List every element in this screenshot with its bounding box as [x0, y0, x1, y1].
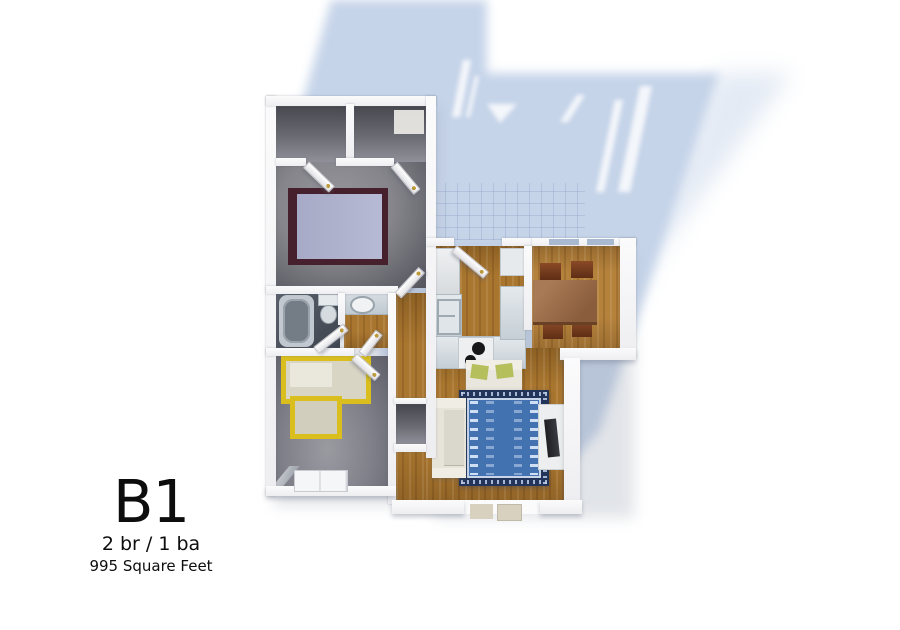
wall-closet-front	[276, 158, 306, 166]
bed-second-blanket	[290, 363, 332, 387]
wall-living-bottom	[540, 500, 582, 514]
hallway-floor	[396, 293, 426, 500]
hall-closet-floor	[394, 404, 426, 444]
wall-outer-left	[266, 96, 276, 496]
wall-hall-closet	[394, 398, 426, 404]
sink-divider	[439, 315, 455, 317]
dining-window	[587, 239, 614, 245]
wall-bath-bottom	[266, 348, 354, 356]
wall-bedroom-right	[426, 96, 436, 458]
wall-kitchen-top	[502, 238, 532, 246]
vanity-sink	[350, 296, 375, 314]
rug-motifs	[470, 401, 478, 475]
rug-motifs	[486, 401, 494, 475]
wall-living-bottom	[392, 500, 464, 514]
plan-label: B1 2 br / 1 ba 995 Square Feet	[78, 472, 224, 575]
tv-stand	[538, 404, 566, 470]
loveseat-pillow	[470, 364, 489, 380]
bathtub-basin	[283, 299, 310, 343]
kitchen-cabinet	[500, 248, 526, 276]
wall-bedroom1-bottom	[266, 286, 398, 294]
wall-living-right	[564, 358, 580, 504]
sofa	[432, 398, 466, 478]
sofa-cushions	[444, 410, 464, 466]
rug-pattern	[461, 480, 547, 484]
closet-left-floor	[276, 104, 346, 162]
tv-screen	[544, 418, 560, 457]
dining-chair	[571, 261, 593, 278]
area-rug	[459, 390, 549, 486]
wall-kitchen-top	[426, 238, 454, 246]
rug-pattern	[461, 392, 547, 396]
wall-hall-closet	[394, 444, 426, 452]
stove-burner-1	[472, 342, 485, 355]
dining-chair	[540, 263, 561, 280]
door-mat	[470, 504, 493, 519]
wall-dining-right	[620, 238, 636, 358]
rug-motifs	[514, 401, 522, 475]
bathtub	[279, 295, 314, 347]
toilet-bowl	[320, 305, 337, 324]
wall-closet-front	[336, 158, 394, 166]
door-mat	[497, 504, 522, 521]
sofa-armrest	[432, 468, 466, 478]
wall-kitchen-dining-divider	[524, 246, 532, 330]
dining-window	[549, 239, 579, 245]
bed-master	[288, 188, 388, 265]
plan-title: B1	[78, 472, 224, 532]
sofa-armrest	[432, 398, 466, 408]
kitchen-sink	[437, 299, 461, 335]
kitchen-counter-right	[500, 286, 526, 340]
floorplan-rendering: B1 2 br / 1 ba 995 Square Feet	[0, 0, 900, 630]
rug-motifs	[530, 401, 538, 475]
loveseat-pillow	[495, 363, 514, 379]
bedroom2-window	[294, 470, 348, 492]
plan-beds-baths: 2 br / 1 ba	[78, 533, 224, 555]
wall-bath-divider	[338, 293, 345, 325]
patio-tile-shadow	[433, 183, 585, 240]
bedroom2-table	[290, 396, 342, 439]
closet-shelf	[394, 110, 424, 134]
dining-table	[533, 280, 597, 325]
wall-closet-divider	[346, 104, 354, 162]
plan-area: 995 Square Feet	[78, 557, 224, 575]
